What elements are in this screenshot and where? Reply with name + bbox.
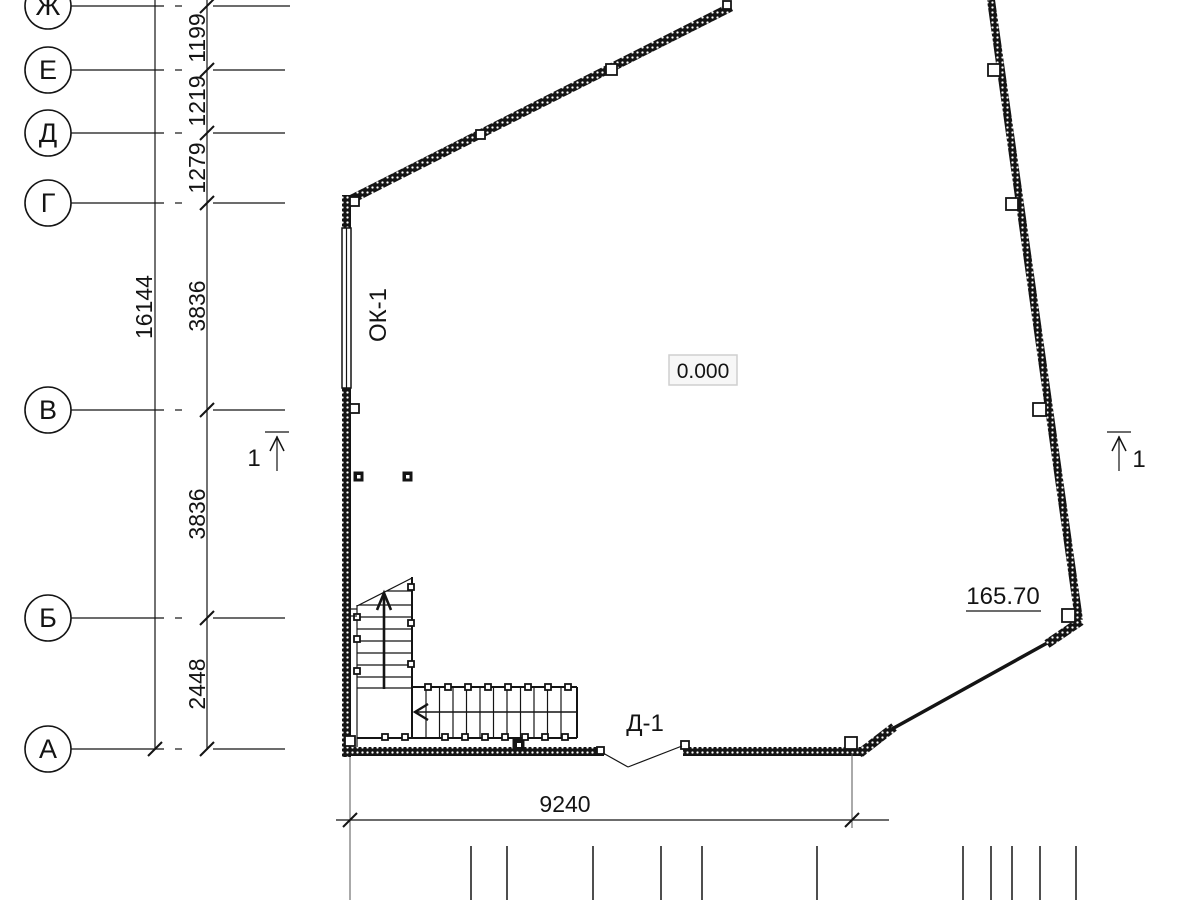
section-label-right: 1 xyxy=(1132,446,1145,473)
grid-label-b: Б xyxy=(39,603,57,633)
grid-label-e: Е xyxy=(39,55,57,85)
floor-plan-canvas: Ж Е Д Г В Б А xyxy=(0,0,1200,900)
bottom-dimension: 9240 xyxy=(336,753,889,900)
window-mark-label: ОК-1 xyxy=(365,288,392,342)
dim-e-d: 1219 xyxy=(184,75,210,126)
elevation-value: 165.70 xyxy=(966,583,1039,610)
dim-v-b: 3836 xyxy=(184,488,210,539)
dim-bottom-width: 9240 xyxy=(539,791,590,817)
grid-label-v: В xyxy=(39,395,57,425)
grid-label-g: Г xyxy=(41,188,56,218)
grid-label-zh: Ж xyxy=(36,0,61,21)
dim-b-a: 2448 xyxy=(184,658,210,709)
grid-axes: Ж Е Д Г В Б А xyxy=(25,0,290,772)
staircase xyxy=(350,574,577,747)
section-label-left: 1 xyxy=(247,445,260,472)
door-d1: Д-1 xyxy=(603,710,682,767)
elevation-marker: 165.70 xyxy=(966,583,1041,611)
dim-zh-e: 1199 xyxy=(184,13,210,62)
floor-plan-drawing: Ж Е Д Г В Б А xyxy=(0,0,1200,900)
floor-level-marker: 0.000 xyxy=(669,355,737,385)
dim-d-g: 1279 xyxy=(184,142,210,193)
stair-posts xyxy=(354,584,571,740)
section-mark-right: 1 xyxy=(1107,432,1146,473)
grid-label-a: А xyxy=(39,734,57,764)
grid-label-d: Д xyxy=(39,118,57,148)
dim-g-v: 3836 xyxy=(184,280,210,331)
bottom-edge-ticks xyxy=(471,846,1076,900)
vertical-dimension-chain: 1199 1219 1279 3836 3836 2448 16144 xyxy=(131,0,214,756)
dim-overall-height: 16144 xyxy=(131,275,157,339)
door-mark-label: Д-1 xyxy=(626,710,664,737)
window-ok1: ОК-1 xyxy=(342,228,392,388)
section-mark-left: 1 xyxy=(247,432,289,472)
floor-level-value: 0.000 xyxy=(677,360,730,383)
